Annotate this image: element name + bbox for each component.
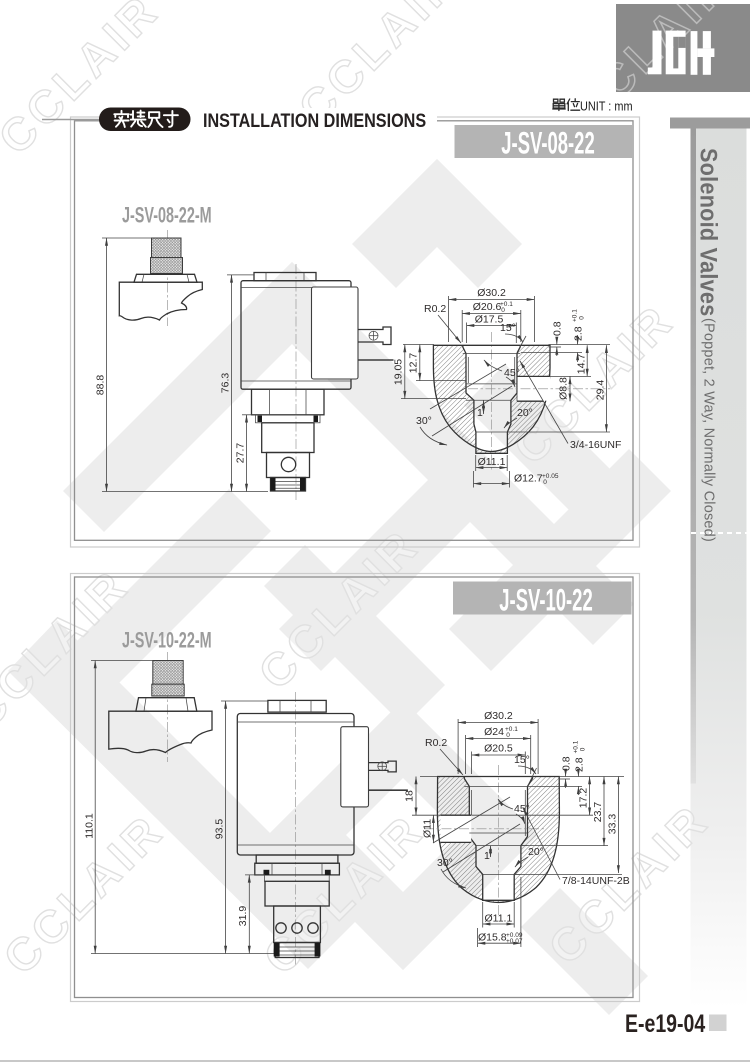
svg-text:3/4-16UNF: 3/4-16UNF [570,439,621,451]
svg-text:INSTALLATION DIMENSIONS: INSTALLATION DIMENSIONS [203,110,426,132]
svg-text:J-SV-08-22-M: J-SV-08-22-M [122,202,212,227]
svg-text:Ø11.1: Ø11.1 [484,913,512,925]
svg-text:0: 0 [505,732,510,739]
svg-text:2.8: 2.8 [573,326,585,341]
svg-text:Ø20.5: Ø20.5 [484,743,513,755]
svg-text:19.05: 19.05 [393,359,405,385]
svg-text:15°: 15° [500,322,516,334]
svg-text:Ø8.8: Ø8.8 [558,377,570,400]
svg-text:2.8: 2.8 [574,757,586,772]
svg-text:0: 0 [542,479,547,486]
svg-text:(Poppet, 2 Way, Normally Close: (Poppet, 2 Way, Normally Closed) [701,318,717,542]
svg-text:18: 18 [404,790,416,802]
svg-text:Ø30.2: Ø30.2 [484,710,513,722]
svg-text:Ø12.7: Ø12.7 [514,473,543,485]
svg-text:12.7: 12.7 [408,353,420,374]
svg-text:30°: 30° [437,857,453,869]
svg-text:29.4: 29.4 [595,380,607,401]
svg-text:J-SV-10-22: J-SV-10-22 [499,583,592,617]
svg-text:Ø30.2: Ø30.2 [477,287,506,299]
svg-text:45°: 45° [514,803,530,815]
svg-text:+0.1: +0.1 [573,740,580,753]
svg-text:UNIT : mm: UNIT : mm [580,99,633,114]
svg-text:E-e19-04: E-e19-04 [625,1010,706,1038]
svg-text:31.9: 31.9 [237,906,249,927]
svg-text:J-SV-10-22-M: J-SV-10-22-M [122,627,212,652]
svg-text:23.7: 23.7 [592,802,604,823]
svg-text:7/8-14UNF-2B: 7/8-14UNF-2B [562,875,630,887]
svg-text:30°: 30° [416,415,432,427]
svg-text:93.5: 93.5 [214,819,226,840]
svg-text:J-SV-08-22: J-SV-08-22 [501,127,594,161]
svg-text:Ø11.1: Ø11.1 [478,456,506,468]
svg-text:1: 1 [477,407,483,419]
svg-text:76.3: 76.3 [220,373,232,394]
svg-text:88.8: 88.8 [95,375,107,396]
svg-text:0.8: 0.8 [552,321,564,336]
svg-text:Solenoid Valves: Solenoid Valves [695,148,722,317]
svg-text:0: 0 [579,316,586,321]
svg-text:CCLAIR: CCLAIR [0,0,169,164]
svg-text:+0.07: +0.07 [506,938,523,945]
svg-text:20°: 20° [517,407,533,419]
svg-text:Ø20.6: Ø20.6 [473,301,502,313]
svg-text:0.8: 0.8 [561,756,573,771]
svg-text:15°: 15° [514,754,530,766]
svg-text:R0.2: R0.2 [425,737,447,749]
svg-text:14.7: 14.7 [576,354,588,375]
svg-text:33.3: 33.3 [607,814,619,835]
svg-text:0: 0 [580,747,587,752]
svg-text:27.7: 27.7 [235,443,247,464]
svg-text:Ø15.8: Ø15.8 [478,932,507,944]
svg-text:Ø11: Ø11 [422,819,434,838]
svg-text:+0.1: +0.1 [572,309,579,322]
svg-text:1: 1 [484,850,490,862]
svg-text:17.2: 17.2 [578,788,590,809]
svg-text:Ø24: Ø24 [484,726,504,738]
svg-text:R0.2: R0.2 [424,303,446,315]
svg-text:20°: 20° [528,846,544,858]
svg-text:110.1: 110.1 [84,813,96,839]
